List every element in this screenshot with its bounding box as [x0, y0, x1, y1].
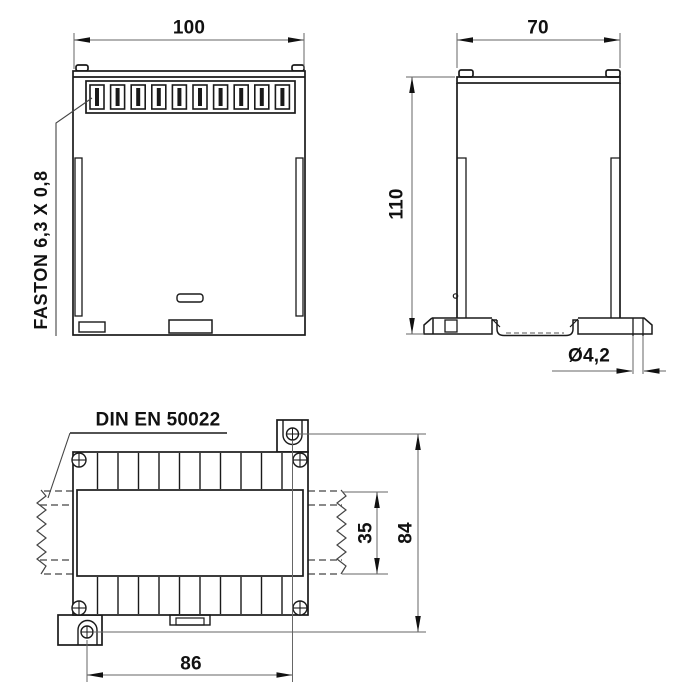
- arrowhead-left-icon: [87, 672, 103, 678]
- side-top-lug-right: [606, 70, 620, 77]
- dim-label-hole-pitch-horizontal: 86: [180, 655, 202, 674]
- arrowhead-right-icon: [277, 672, 293, 678]
- arrowhead-down-icon: [415, 616, 421, 632]
- arrowhead-down-icon: [374, 558, 380, 574]
- rear-latch-tab-inner: [176, 618, 204, 625]
- side-view: [424, 70, 652, 336]
- arrowhead-up-icon: [415, 434, 421, 450]
- arrowhead-up-icon: [374, 492, 380, 508]
- front-view: [73, 65, 305, 335]
- rear-view: [37, 420, 346, 645]
- front-top-lug-right: [292, 65, 304, 71]
- foot-notch: [445, 320, 457, 332]
- rail-hooks: [492, 319, 578, 327]
- mounting-ear-bottom-left: [58, 615, 102, 645]
- dim-label-hole-pitch-vertical: 84: [397, 522, 416, 544]
- arrowhead-up-icon: [409, 77, 415, 93]
- rail-standard-label: DIN EN 50022: [96, 411, 221, 430]
- arrowhead-left-icon: [74, 37, 90, 43]
- front-body-outline: [73, 71, 305, 335]
- arrowhead-left-icon: [457, 37, 473, 43]
- arrowhead-right-icon: [617, 368, 633, 374]
- side-groove-right: [611, 158, 620, 318]
- rail-break-line-right: [337, 490, 346, 574]
- arrowhead-left-icon: [644, 368, 660, 374]
- dimension-side-height: [406, 77, 455, 334]
- rail-break-line-left: [37, 490, 46, 574]
- arrowhead-right-icon: [604, 37, 620, 43]
- dim-label-side-height: 110: [388, 188, 407, 219]
- dim-label-hole-diameter: Ø4,2: [568, 347, 610, 366]
- arrowhead-down-icon: [409, 318, 415, 334]
- side-top-lug-left: [459, 70, 473, 77]
- dim-label-side-width: 70: [527, 19, 549, 38]
- din-rail-feet: [424, 318, 652, 336]
- front-top-lug-left: [76, 65, 88, 71]
- rail-label-leader: [48, 433, 70, 498]
- rear-body-outline: [73, 452, 308, 615]
- drawing-canvas: 100 FASTON 6,3 X 0,8 70 110 Ø4,2 DIN EN …: [0, 0, 700, 700]
- dim-label-front-width: 100: [173, 19, 205, 38]
- side-top-cap: [457, 77, 620, 83]
- dim-label-rail-width: 35: [357, 522, 376, 544]
- side-groove-left: [457, 158, 466, 318]
- terminal-type-label: FASTON 6,3 X 0,8: [32, 170, 50, 329]
- arrowhead-right-icon: [288, 37, 304, 43]
